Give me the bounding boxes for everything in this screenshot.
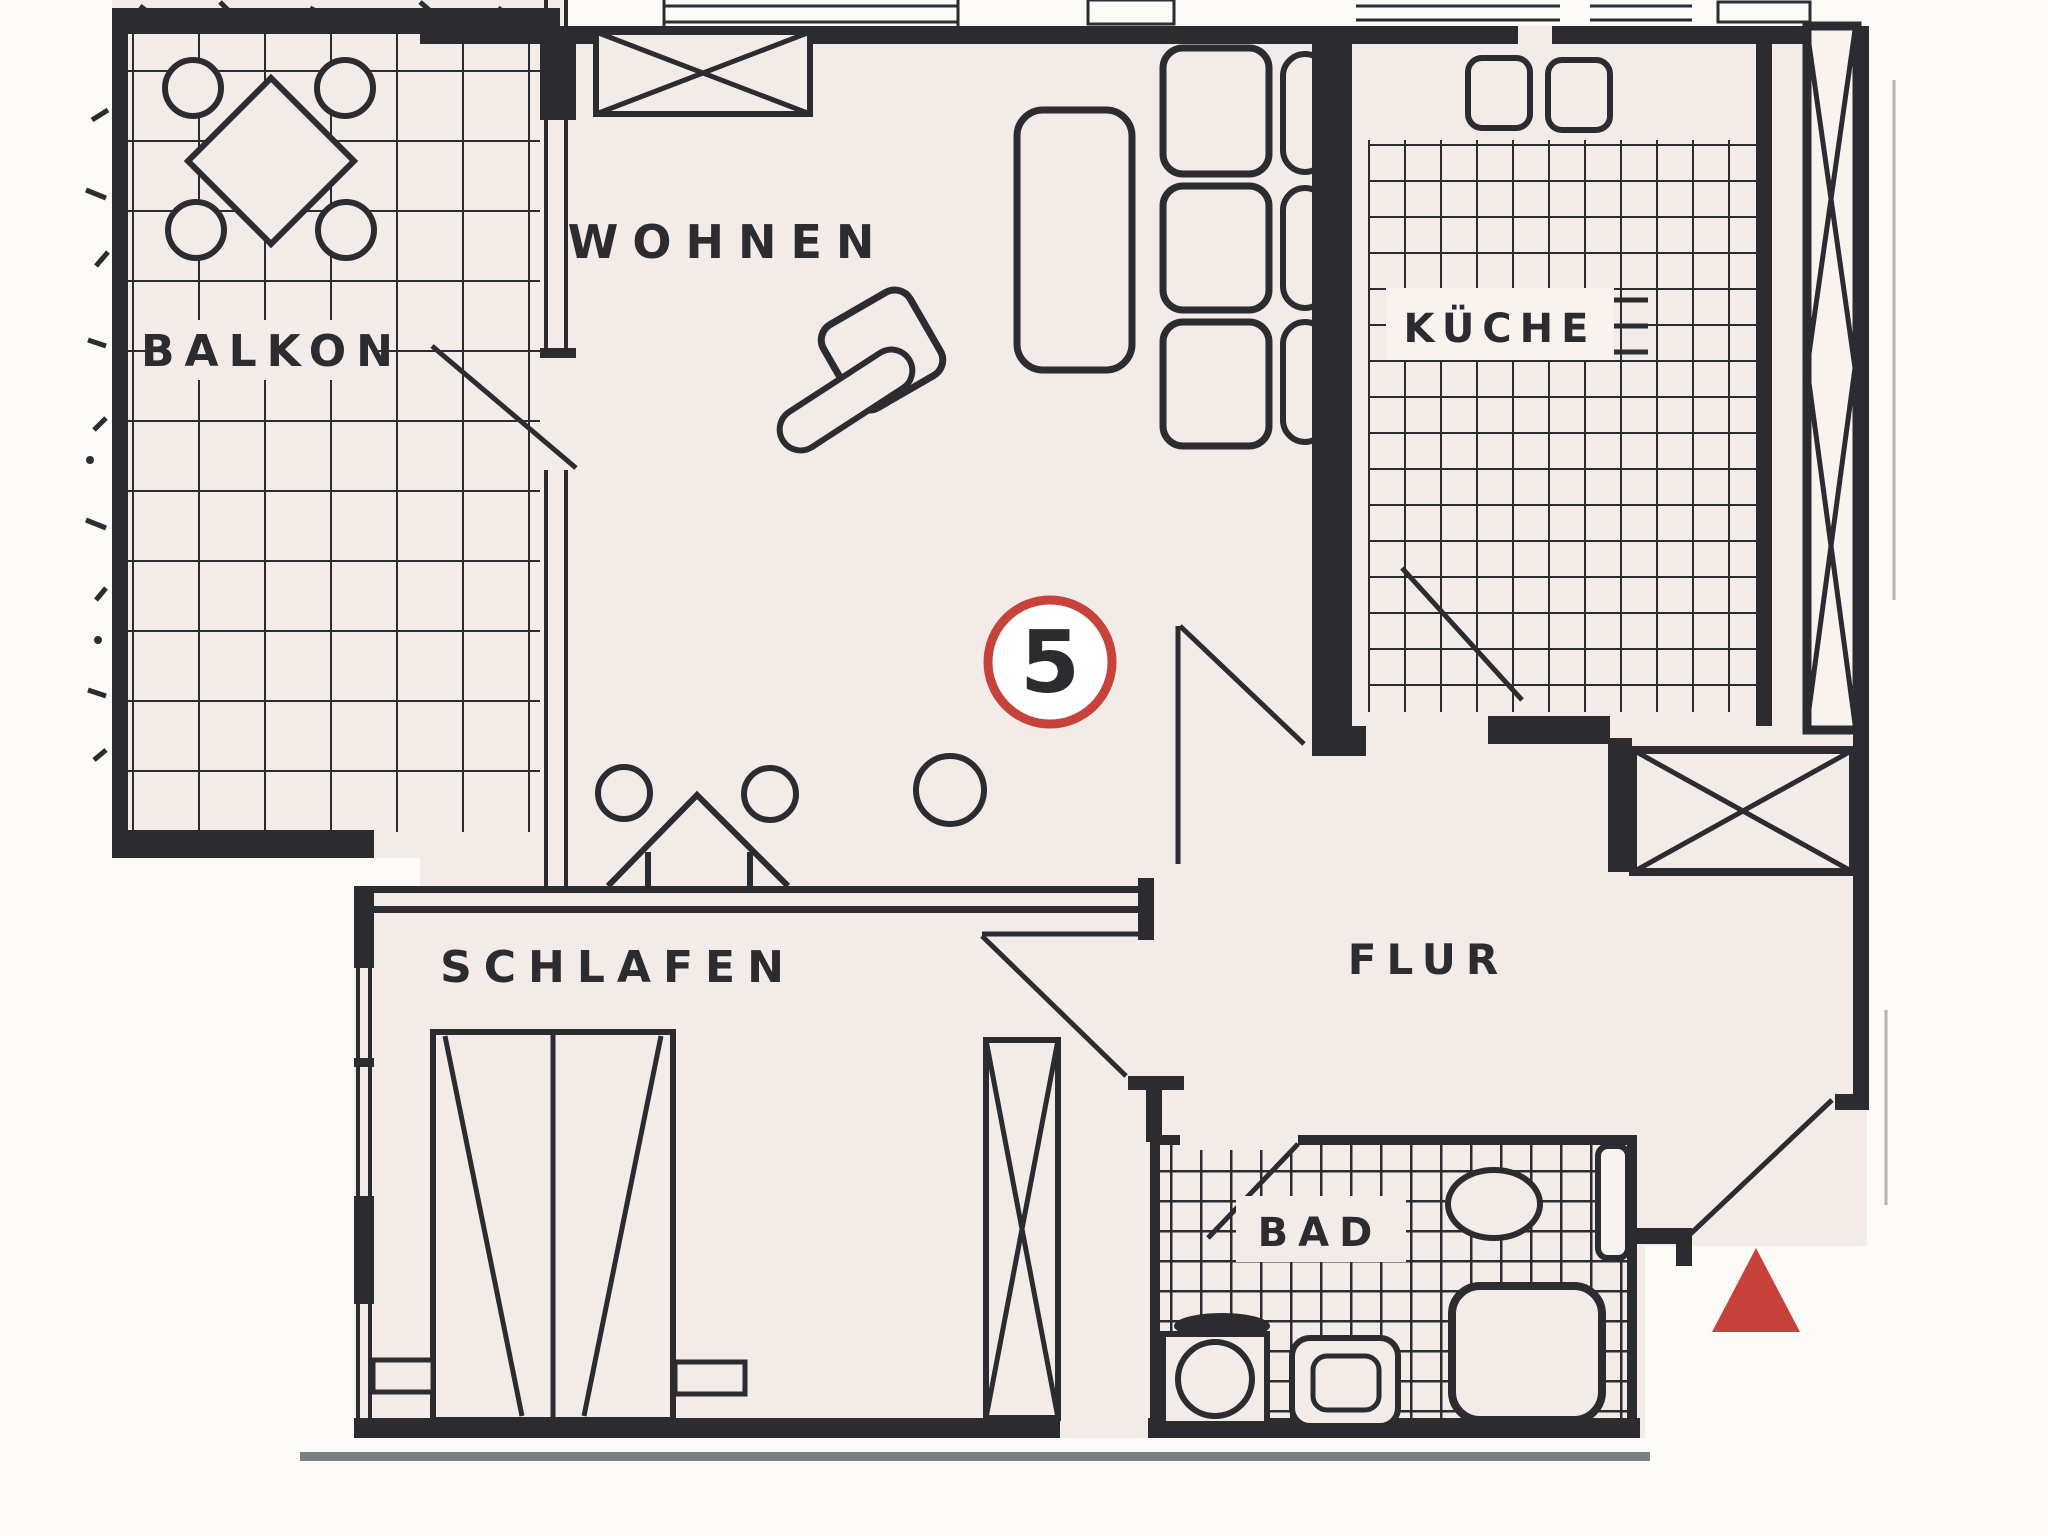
room-label-kueche: KÜCHE: [1404, 304, 1597, 352]
balcony-chair: [318, 202, 374, 258]
balcony-bottom-wall: [112, 830, 374, 858]
hob-burner-icon: [1468, 58, 1530, 128]
entrance-jamb: [1835, 1094, 1869, 1110]
shaft-box: [1807, 26, 1857, 730]
room-label-wohnen: WOHNEN: [568, 215, 889, 269]
room-label-balkon: BALKON: [141, 326, 403, 377]
kitchen-door-jamb: [1312, 726, 1366, 756]
balcony-chair: [168, 202, 224, 258]
nightstand: [373, 1360, 433, 1392]
right-outer-wall: [1853, 26, 1869, 1108]
nightstand: [675, 1362, 745, 1394]
chair: [916, 756, 984, 824]
cupboard-wall-stub: [1608, 738, 1632, 872]
sofa-cushion: [1163, 48, 1269, 174]
bathtub: [1452, 1286, 1602, 1420]
sofa-cushion: [1163, 186, 1269, 310]
schlafen-left-wall: [354, 886, 374, 968]
bedroom-wardrobe: [986, 1040, 1058, 1418]
balcony-chair: [317, 60, 373, 116]
schlafen-door-jamb: [1138, 878, 1154, 940]
hob-burner-icon: [1548, 60, 1610, 130]
radiator: [1598, 1146, 1628, 1258]
unit-number-badge: 5: [988, 600, 1112, 724]
room-label-schlafen: SCHLAFEN: [440, 942, 796, 993]
washing-machine: [1163, 1334, 1267, 1424]
kitchen-top-wall: [1342, 26, 1518, 44]
window-x-icon: [596, 32, 810, 114]
room-label-bad: BAD: [1258, 1210, 1383, 1256]
unit-badge-number: 5: [1020, 613, 1080, 713]
hall-cupboard: [1608, 738, 1853, 872]
floor-plan-drawing: BALKON WOH: [0, 0, 2048, 1536]
kitchen-left-wall: [1312, 26, 1352, 752]
sink: [1448, 1170, 1540, 1238]
kitchen-right-wall: [1756, 26, 1772, 726]
wohnen-left-wall-stub: [540, 26, 576, 120]
balcony-left-wall: [112, 8, 128, 858]
double-bed: [433, 1032, 673, 1420]
floor-plan-scan: BALKON WOH: [0, 0, 2048, 1536]
room-balkon: BALKON: [86, 0, 566, 886]
balcony-tile-floor: [128, 8, 540, 832]
toilet: [1292, 1338, 1398, 1426]
kitchen-tile-floor: [1368, 140, 1756, 712]
chair: [744, 768, 796, 820]
chair: [598, 767, 650, 819]
balcony-chair: [165, 60, 221, 116]
sofa-cushion: [1163, 322, 1269, 446]
sofa-table: [1017, 110, 1132, 370]
room-label-flur: FLUR: [1348, 935, 1508, 984]
service-shaft: [1807, 26, 1857, 730]
ground-baseline: [300, 1452, 1650, 1461]
kitchen-bottom-wall: [1488, 716, 1610, 744]
